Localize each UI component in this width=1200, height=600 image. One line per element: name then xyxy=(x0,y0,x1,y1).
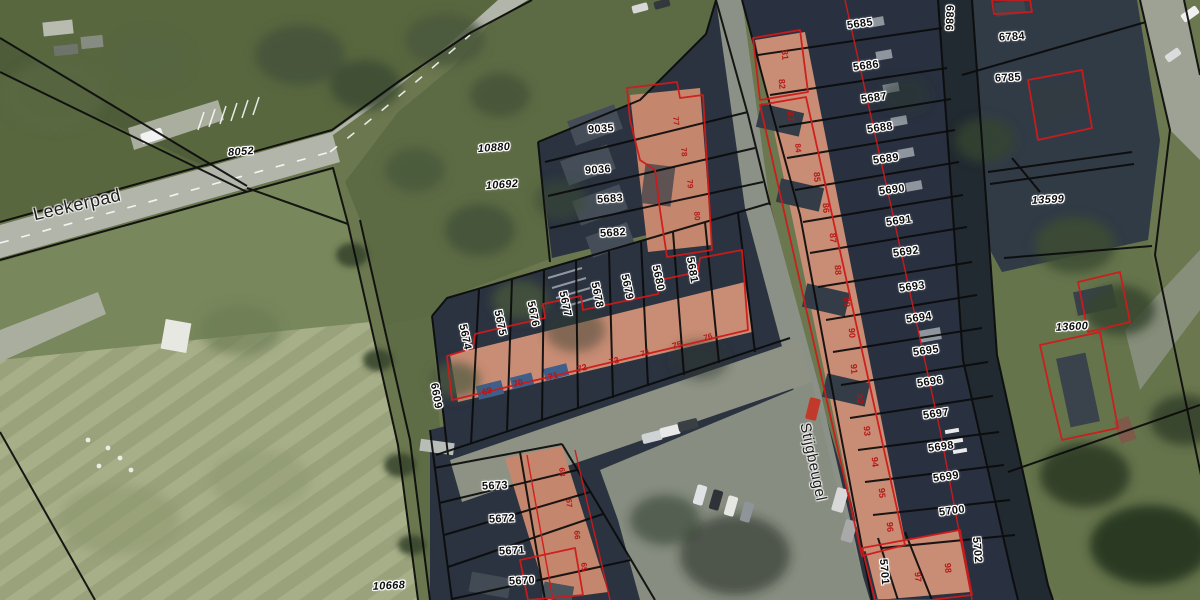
map-canvas[interactable] xyxy=(0,0,1200,600)
aerial-cadastral-map: 8052108801069210668135991360090359036568… xyxy=(0,0,1200,600)
